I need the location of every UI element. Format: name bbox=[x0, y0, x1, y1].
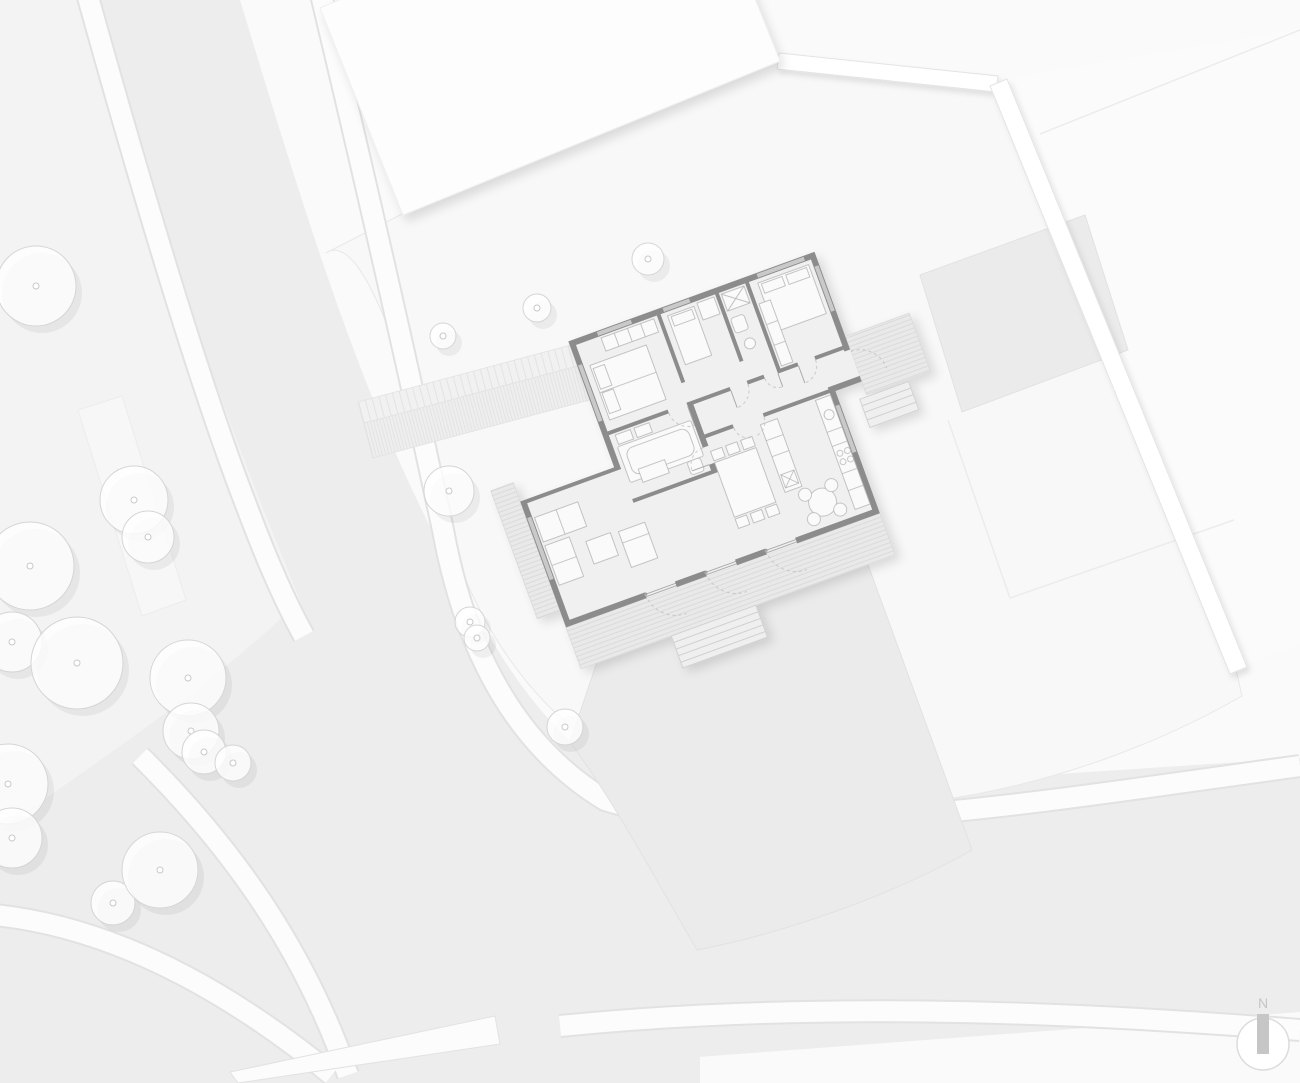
north-arrow-needle bbox=[1257, 1014, 1269, 1054]
north-label: N bbox=[1258, 995, 1268, 1011]
site-plan-canvas: N bbox=[0, 0, 1300, 1083]
site-plan-page: N bbox=[0, 0, 1300, 1083]
